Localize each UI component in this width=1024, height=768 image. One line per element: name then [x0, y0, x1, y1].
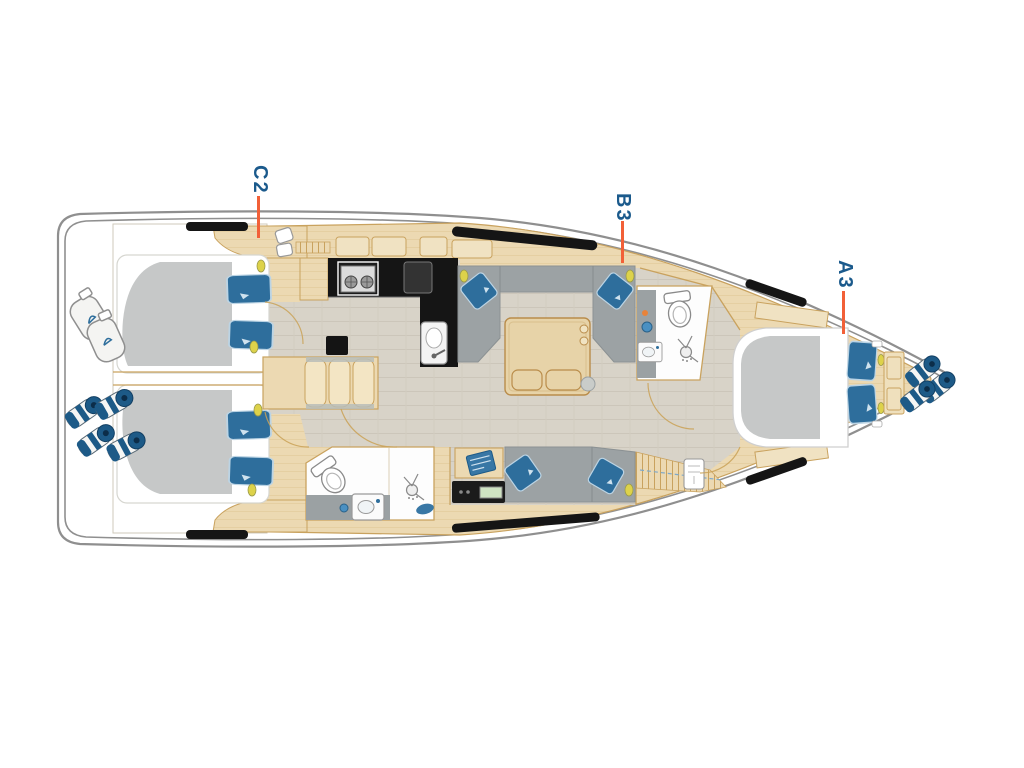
reading-light-icon	[625, 484, 633, 496]
floor-plan-drawing	[0, 0, 1024, 768]
oven-icon	[404, 262, 432, 293]
yacht-floor-plan: C2 B3 A3	[0, 0, 1024, 768]
cabin-label-c2: C2	[250, 165, 270, 195]
stove-icon	[338, 262, 378, 295]
reading-light-icon	[878, 355, 884, 366]
accessory-dot	[642, 310, 648, 316]
pillow-icon	[847, 384, 878, 424]
reading-light-icon	[248, 484, 256, 496]
salon-table	[505, 318, 595, 395]
mattress	[741, 336, 820, 439]
cabin-label-a3-leader-line	[842, 291, 845, 334]
reading-light-icon	[254, 404, 262, 416]
aft-head	[306, 447, 435, 520]
nav-station	[450, 447, 505, 505]
cabin-label-a3: A3	[835, 260, 855, 290]
reading-light-icon	[460, 270, 468, 282]
soap-dispenser-icon	[340, 504, 348, 512]
faucet-icon	[642, 322, 652, 332]
companionway-stairs	[263, 357, 378, 409]
pillow-icon	[227, 410, 271, 439]
cabin-label-b3-leader-line	[621, 221, 624, 263]
mattress	[122, 262, 232, 366]
mast-post	[326, 336, 348, 355]
reading-light-icon	[250, 341, 258, 353]
reading-light-icon	[878, 403, 884, 414]
sink-icon	[352, 494, 384, 520]
reading-light-icon	[257, 260, 265, 272]
cabin-label-c2-leader-line	[257, 196, 260, 238]
reading-light-icon	[626, 270, 634, 282]
sink-icon	[638, 342, 662, 362]
pillow-icon	[229, 456, 273, 485]
forward-head	[637, 286, 712, 380]
pillow-icon	[227, 274, 271, 303]
salon-settee	[504, 447, 635, 502]
galley-sink-icon	[421, 322, 447, 364]
water-heater-icon	[684, 459, 704, 489]
cabin-label-b3: B3	[613, 193, 633, 223]
